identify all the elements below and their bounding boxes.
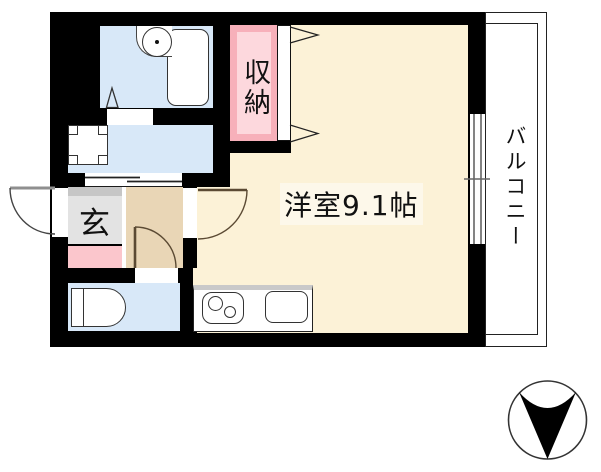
entrance-step-strip	[68, 187, 122, 196]
balcony-window-opening	[470, 114, 485, 244]
floorplan-canvas: 洋室9.1帖 収納 玄 バルコニー	[0, 0, 601, 472]
closet-door-leaf	[277, 25, 291, 141]
entry-door-swing-arc	[10, 188, 55, 234]
main-room-door-opening	[183, 188, 197, 238]
stove-icon	[202, 292, 244, 324]
storage-label: 収納	[237, 42, 271, 134]
washer-corner	[98, 155, 108, 165]
north-arrow-icon	[505, 378, 590, 463]
shoe-cabinet	[68, 246, 122, 268]
stove-burner-icon	[208, 296, 223, 311]
washer-corner	[68, 125, 78, 135]
balcony-label: バルコニー	[496, 90, 534, 285]
washing-machine-icon	[68, 125, 108, 165]
kitchen-sink-icon	[265, 291, 308, 323]
washer-corner	[68, 155, 78, 165]
toilet-bowl-icon	[83, 288, 126, 327]
toilet-door-opening	[135, 268, 178, 283]
wash-basin-icon	[142, 27, 172, 57]
basin-drain-dot	[155, 40, 159, 44]
washroom-sliding-door-opening	[85, 173, 182, 187]
entry-door-opening	[52, 188, 68, 237]
bathroom-door-opening	[107, 109, 153, 125]
main-room-label: 洋室9.1帖	[280, 183, 423, 225]
hallway-floor	[126, 187, 183, 268]
bathtub-icon	[167, 29, 209, 106]
washer-corner	[98, 125, 108, 135]
entrance-label: 玄	[79, 198, 110, 243]
stove-burner-icon	[224, 306, 236, 318]
